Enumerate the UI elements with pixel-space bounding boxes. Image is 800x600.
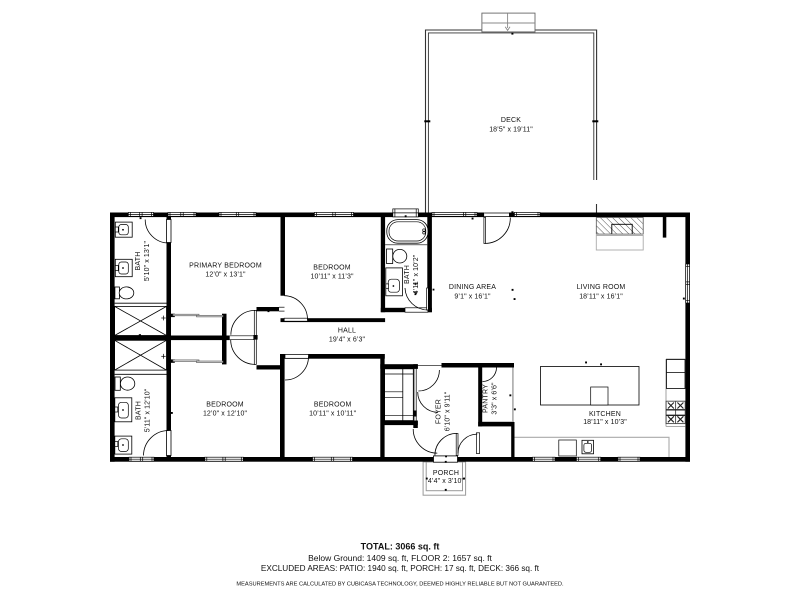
svg-text:FOYER: FOYER [436,399,443,424]
svg-text:4’4" x 3’10": 4’4" x 3’10" [428,478,465,485]
svg-text:18’11" x 16’1": 18’11" x 16’1" [579,294,623,301]
svg-text:BATH: BATH [404,265,411,284]
svg-text:12’0" x 12’10": 12’0" x 12’10" [203,411,248,418]
svg-text:HALL: HALL [338,328,356,335]
svg-text:BEDROOM: BEDROOM [314,402,352,409]
svg-text:3’3" x 6’6": 3’3" x 6’6" [492,382,499,415]
svg-text:DINING AREA: DINING AREA [449,284,496,291]
svg-text:MEASUREMENTS ARE CALCULATED BY: MEASUREMENTS ARE CALCULATED BY CUBICASA … [236,582,564,588]
svg-text:LIVING ROOM: LIVING ROOM [577,284,626,291]
svg-text:9’1" x 16’1": 9’1" x 16’1" [454,294,491,301]
svg-text:6’10" x 9’11": 6’10" x 9’11" [445,391,452,431]
svg-text:18’5" x 19’11": 18’5" x 19’11" [489,127,533,134]
svg-text:TOTAL: 3066 sq. ft: TOTAL: 3066 sq. ft [361,542,440,552]
svg-text:5’10" x 13’1": 5’10" x 13’1" [144,241,151,282]
svg-text:PORCH: PORCH [433,470,459,477]
svg-text:DECK: DECK [501,117,521,124]
svg-text:Below Ground: 1409 sq. ft, FLO: Below Ground: 1409 sq. ft, FLOOR 2: 1657… [308,553,492,563]
svg-text:BATH: BATH [136,401,143,420]
svg-text:10’11" x 11’3": 10’11" x 11’3" [310,274,353,281]
svg-text:BEDROOM: BEDROOM [313,265,351,272]
svg-text:12’0" x 13’1": 12’0" x 13’1" [205,272,246,279]
svg-text:KITCHEN: KITCHEN [589,411,621,418]
svg-text:18’11" x 10’3": 18’11" x 10’3" [583,419,627,426]
svg-text:5’11" x 12’10": 5’11" x 12’10" [145,388,152,432]
svg-text:BATH: BATH [135,252,142,271]
svg-text:PANTRY: PANTRY [483,384,490,413]
svg-text:19’4" x 6’3": 19’4" x 6’3" [329,337,366,344]
svg-text:PRIMARY BEDROOM: PRIMARY BEDROOM [189,263,262,270]
svg-text:4’11" x 10’2": 4’11" x 10’2" [413,254,420,294]
svg-text:EXCLUDED AREAS: PATIO: 1940 sq: EXCLUDED AREAS: PATIO: 1940 sq. ft, PORC… [261,564,540,573]
svg-text:BEDROOM: BEDROOM [206,402,244,409]
svg-text:10’11" x 10’11": 10’11" x 10’11" [309,411,356,418]
